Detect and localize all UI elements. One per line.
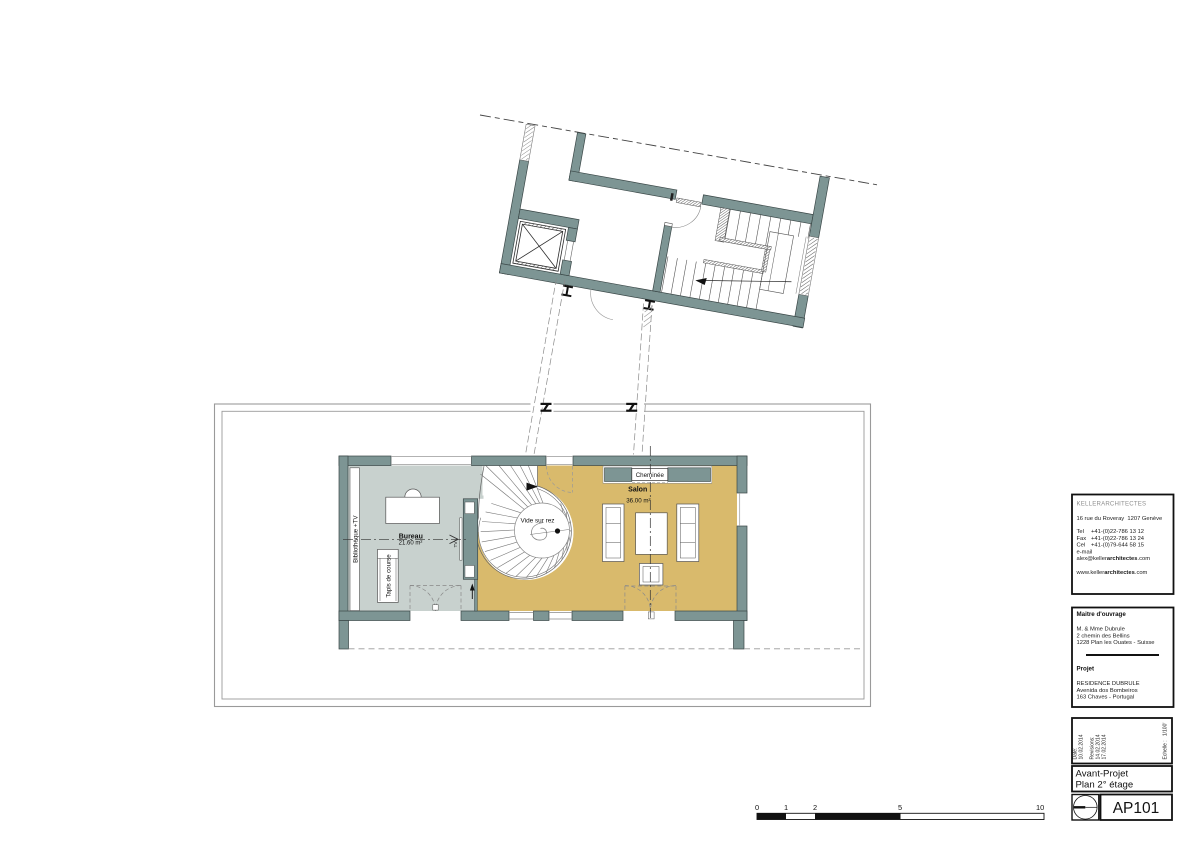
svg-text:Revisions:14.02.201417.02.2014: Revisions:14.02.201417.02.2014 [1090, 734, 1108, 759]
svg-text:10: 10 [1036, 803, 1044, 812]
svg-text:Vide sur rez: Vide sur rez [521, 518, 555, 525]
svg-text:Salon: Salon [628, 486, 647, 493]
svg-text:16 rue du Roveray 1207 Genève: 16 rue du Roveray 1207 Genève [1077, 516, 1163, 522]
svg-text:+41-(0)22-786 13 24: +41-(0)22-786 13 24 [1091, 536, 1145, 542]
svg-text:Avant-Projet: Avant-Projet [1076, 769, 1129, 780]
svg-text:36.00 m²: 36.00 m² [626, 498, 650, 505]
svg-text:www.kellerarchitectes.com: www.kellerarchitectes.com [1076, 570, 1148, 576]
svg-text:Maitre d'ouvrage: Maitre d'ouvrage [1077, 611, 1127, 618]
svg-text:TV: TV [453, 541, 459, 548]
svg-text:+41-(0)22-786 13 12: +41-(0)22-786 13 12 [1091, 529, 1144, 535]
svg-text:KELLERARCHITECTES: KELLERARCHITECTES [1077, 501, 1147, 508]
svg-text:2 chemin des Bellins: 2 chemin des Bellins [1077, 633, 1130, 639]
svg-text:alex@kellerarchitectes.com: alex@kellerarchitectes.com [1077, 556, 1151, 562]
svg-text:1228 Plan les Ouates - Suisse: 1228 Plan les Ouates - Suisse [1077, 640, 1155, 646]
svg-text:Avenida dos Bombeiros: Avenida dos Bombeiros [1077, 688, 1138, 694]
svg-text:Tel: Tel [1077, 529, 1084, 535]
svg-text:163 Chaves - Portugal: 163 Chaves - Portugal [1077, 695, 1135, 701]
svg-text:Bibliothèque +TV: Bibliothèque +TV [352, 515, 359, 563]
svg-text:Projet: Projet [1077, 666, 1095, 673]
svg-text:Fax: Fax [1077, 536, 1087, 542]
svg-text:RESIDENCE DUBRULE: RESIDENCE DUBRULE [1077, 681, 1140, 687]
svg-text:21.60 m²: 21.60 m² [399, 541, 423, 547]
svg-text:e-mail: e-mail [1077, 549, 1093, 555]
svg-text:Plan 2° étage: Plan 2° étage [1076, 780, 1134, 791]
svg-text:0: 0 [755, 803, 759, 812]
svg-text:Cel: Cel [1077, 543, 1086, 549]
svg-text:1: 1 [784, 803, 788, 812]
svg-text:Echelle : 1/100’: Echelle : 1/100’ [1163, 723, 1169, 760]
svg-text:2: 2 [813, 803, 817, 812]
svg-text:M. & Mme Dubrule: M. & Mme Dubrule [1077, 627, 1125, 633]
svg-text:Tapis de course: Tapis de course [386, 554, 393, 598]
svg-text:5: 5 [898, 803, 902, 812]
svg-text:+41-(0)79-644 58 15: +41-(0)79-644 58 15 [1091, 543, 1144, 549]
svg-text:AP101: AP101 [1113, 800, 1160, 817]
